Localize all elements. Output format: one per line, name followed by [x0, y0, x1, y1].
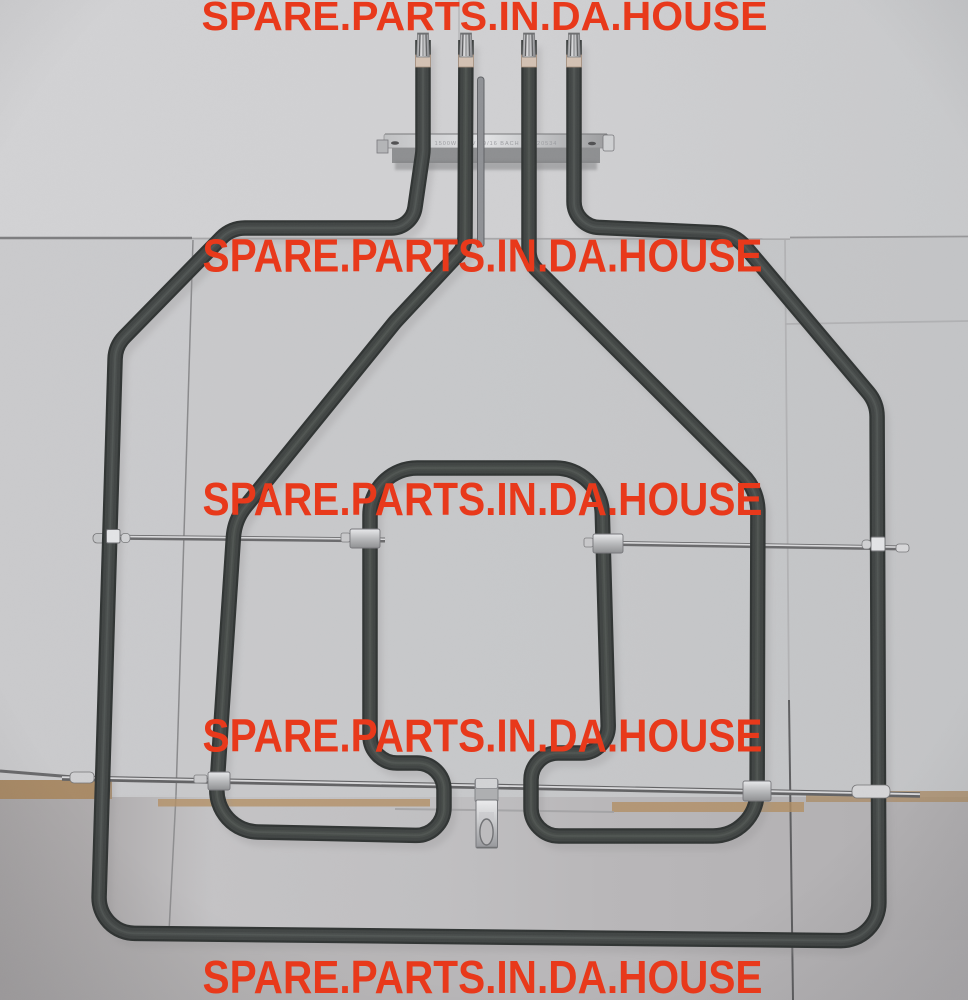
svg-text:SPARE.PARTS.IN.DA.HOUSE: SPARE.PARTS.IN.DA.HOUSE: [203, 230, 763, 282]
svg-text:SPARE.PARTS.IN.DA.HOUSE: SPARE.PARTS.IN.DA.HOUSE: [202, 0, 768, 39]
svg-text:SPARE.PARTS.IN.DA.HOUSE: SPARE.PARTS.IN.DA.HOUSE: [203, 473, 763, 525]
svg-text:SPARE.PARTS.IN.DA.HOUSE: SPARE.PARTS.IN.DA.HOUSE: [203, 951, 763, 1000]
svg-text:SPARE.PARTS.IN.DA.HOUSE: SPARE.PARTS.IN.DA.HOUSE: [203, 710, 763, 762]
